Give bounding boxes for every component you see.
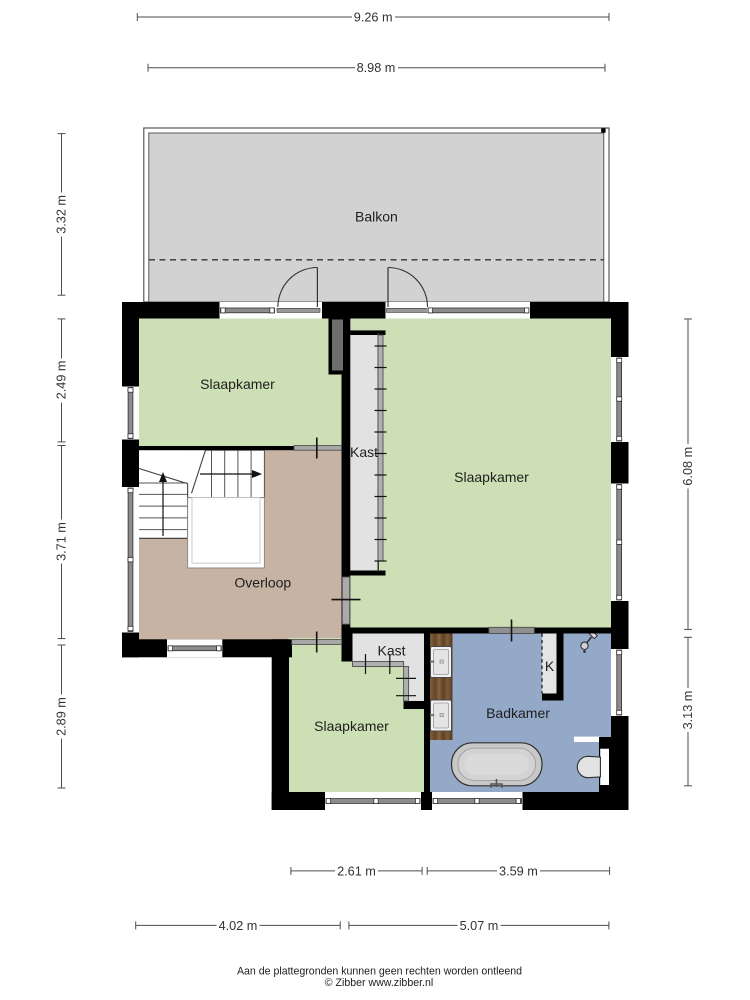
svg-text:9.26 m: 9.26 m: [354, 11, 393, 25]
svg-text:Balkon: Balkon: [355, 209, 398, 225]
svg-text:5.07 m: 5.07 m: [460, 919, 499, 933]
svg-text:Overloop: Overloop: [234, 575, 291, 591]
svg-text:3.71 m: 3.71 m: [55, 522, 69, 561]
svg-text:2.49 m: 2.49 m: [55, 361, 69, 400]
svg-text:Kast: Kast: [350, 444, 378, 460]
svg-text:3.32 m: 3.32 m: [55, 195, 69, 234]
svg-text:3.13 m: 3.13 m: [681, 691, 695, 730]
svg-text:2.89 m: 2.89 m: [55, 697, 69, 736]
svg-text:4.02 m: 4.02 m: [219, 919, 258, 933]
svg-text:Slaapkamer: Slaapkamer: [200, 376, 275, 392]
svg-text:2.61 m: 2.61 m: [337, 864, 376, 878]
svg-text:6.08 m: 6.08 m: [681, 447, 695, 486]
svg-text:Slaapkamer: Slaapkamer: [314, 718, 389, 734]
svg-text:8.98 m: 8.98 m: [357, 61, 396, 75]
svg-text:Kast: Kast: [377, 643, 405, 659]
svg-text:3.59 m: 3.59 m: [499, 864, 538, 878]
svg-text:Badkamer: Badkamer: [486, 705, 550, 721]
svg-text:K: K: [545, 658, 555, 674]
svg-text:Aan de plattegronden kunnen ge: Aan de plattegronden kunnen geen rechten…: [237, 965, 522, 977]
svg-text:© Zibber www.zibber.nl: © Zibber www.zibber.nl: [325, 977, 434, 989]
svg-text:Slaapkamer: Slaapkamer: [454, 469, 529, 485]
